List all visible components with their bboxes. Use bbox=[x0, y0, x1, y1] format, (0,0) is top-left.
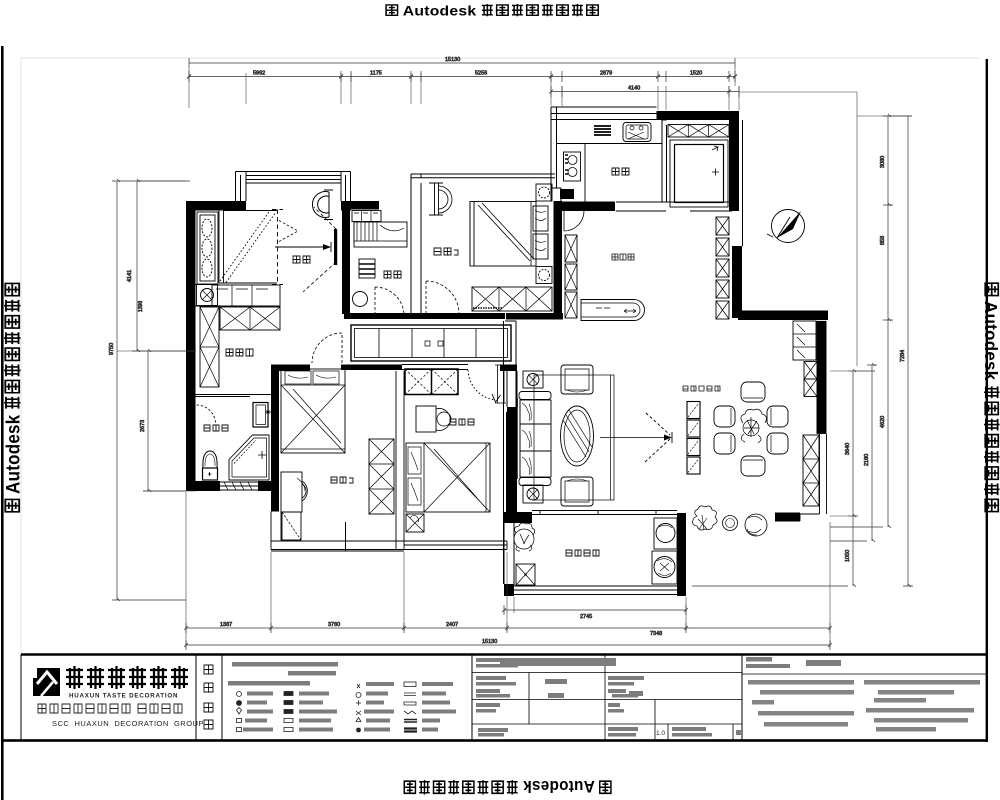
svg-text:5256: 5256 bbox=[475, 71, 487, 77]
svg-text:SCC HUAXUN DECORATION GROUP: SCC HUAXUN DECORATION GROUP bbox=[52, 719, 204, 728]
svg-text:HUAXUN TASTE DECORATION: HUAXUN TASTE DECORATION bbox=[69, 693, 178, 700]
svg-text:1.0: 1.0 bbox=[656, 730, 665, 737]
svg-text:3640: 3640 bbox=[845, 443, 851, 455]
svg-text:858: 858 bbox=[880, 236, 886, 245]
svg-text:2745: 2745 bbox=[580, 614, 592, 620]
svg-text:4140: 4140 bbox=[628, 86, 640, 92]
svg-text:15130: 15130 bbox=[445, 57, 460, 63]
svg-text:4620: 4620 bbox=[880, 416, 886, 428]
svg-text:5962: 5962 bbox=[253, 71, 265, 77]
svg-text:1050: 1050 bbox=[845, 550, 851, 562]
svg-text:4141: 4141 bbox=[127, 270, 133, 282]
svg-text:9750: 9750 bbox=[109, 343, 115, 355]
svg-text:1520: 1520 bbox=[690, 71, 702, 77]
svg-text:7348: 7348 bbox=[650, 631, 662, 637]
svg-text:7284: 7284 bbox=[900, 350, 906, 362]
svg-text:2679: 2679 bbox=[600, 71, 612, 77]
svg-text:3080: 3080 bbox=[880, 156, 886, 168]
svg-text:1387: 1387 bbox=[220, 622, 232, 628]
svg-text:1398: 1398 bbox=[138, 301, 144, 312]
svg-text:2407: 2407 bbox=[446, 622, 458, 628]
svg-text:2673: 2673 bbox=[140, 420, 146, 432]
svg-text:2180: 2180 bbox=[864, 454, 870, 466]
svg-text:3760: 3760 bbox=[328, 622, 340, 628]
svg-text:1175: 1175 bbox=[370, 71, 382, 77]
svg-text:15130: 15130 bbox=[482, 639, 497, 645]
